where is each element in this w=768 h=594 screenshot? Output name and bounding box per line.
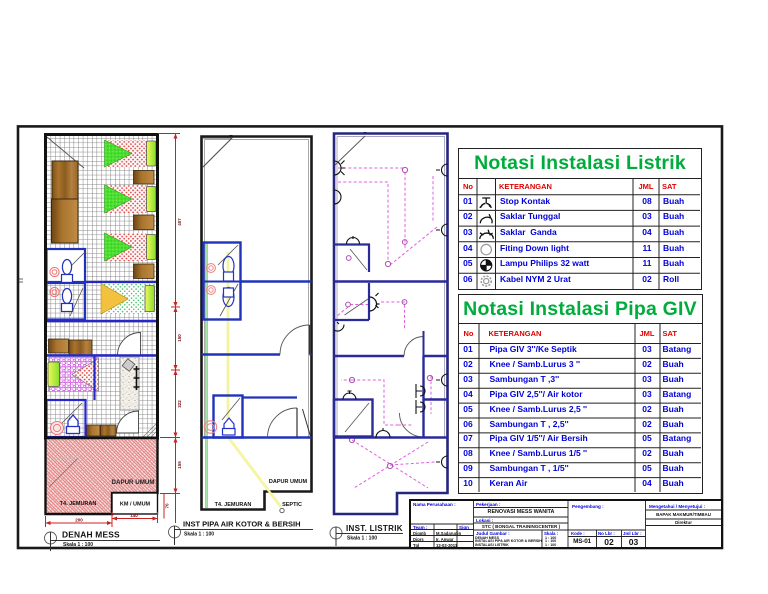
svg-text:Skala 1 : 100: Skala 1 : 100 xyxy=(347,536,377,542)
svg-text:Skala 1 : 100: Skala 1 : 100 xyxy=(63,542,93,548)
svg-text:140: 140 xyxy=(130,513,138,518)
svg-text:DAPUR UMUM: DAPUR UMUM xyxy=(112,479,155,486)
svg-text:INST. LISTRIK: INST. LISTRIK xyxy=(346,524,403,533)
svg-text:DAPUR UMUM: DAPUR UMUM xyxy=(269,479,308,485)
svg-text:KM / UMUM: KM / UMUM xyxy=(120,502,151,508)
svg-text:322: 322 xyxy=(177,400,182,408)
svg-text:T4. JEMURAN: T4. JEMURAN xyxy=(215,502,252,508)
svg-text:Skala 1 : 100: Skala 1 : 100 xyxy=(184,532,214,538)
svg-text:155: 155 xyxy=(177,461,182,469)
svg-text:SEPTIC: SEPTIC xyxy=(282,502,302,508)
svg-text:INST PIPA AIR KOTOR & BERSIH: INST PIPA AIR KOTOR & BERSIH xyxy=(183,520,301,529)
svg-text:150: 150 xyxy=(177,334,182,342)
svg-text:T4. JEMURAN: T4. JEMURAN xyxy=(60,501,97,507)
svg-text:200: 200 xyxy=(75,518,83,523)
svg-text:70: 70 xyxy=(165,503,170,509)
svg-text:DENAH MESS: DENAH MESS xyxy=(62,530,120,540)
svg-text:407: 407 xyxy=(177,218,182,226)
